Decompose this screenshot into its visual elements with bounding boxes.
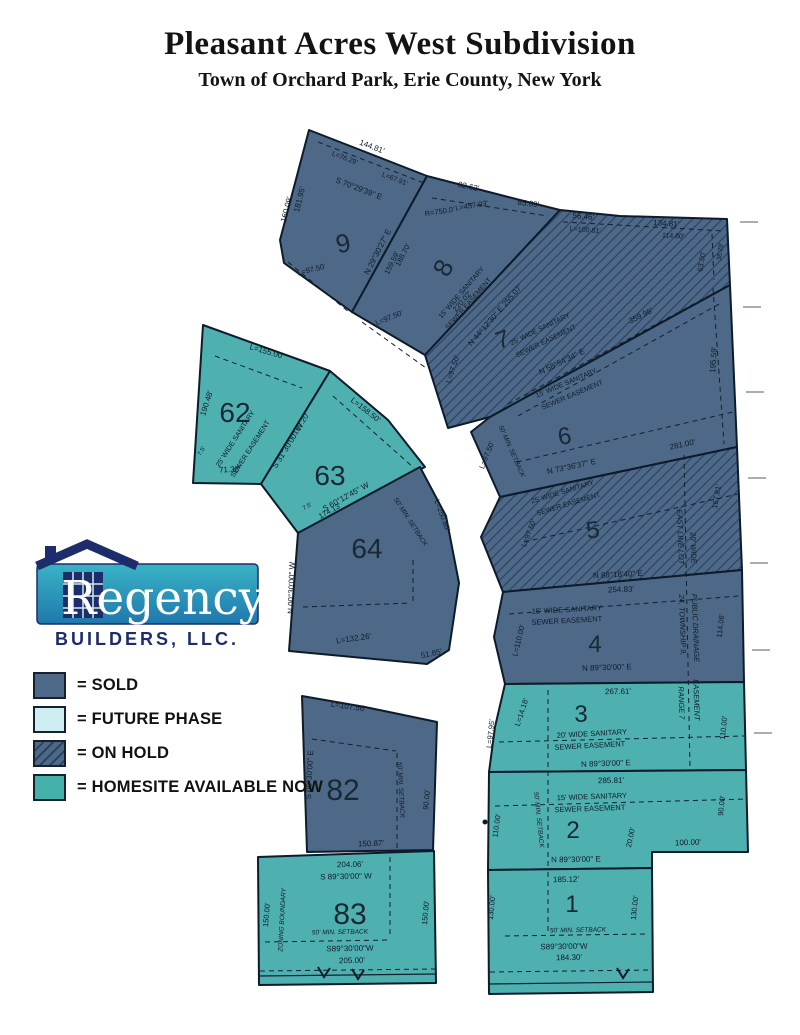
- map-dim-label: 285.81': [598, 776, 625, 785]
- legend-item-future: = FUTURE PHASE: [33, 706, 323, 733]
- map-dim-label: 205.00': [339, 956, 366, 965]
- map-dim-label: 71.38': [219, 464, 241, 474]
- lot-number-2: 2: [566, 817, 579, 844]
- legend-label: = SOLD: [77, 676, 138, 695]
- logo-tagline: BUILDERS, LLC.: [55, 629, 239, 649]
- boundary-ticks: [740, 222, 772, 733]
- subdivision-plat-map: 144.81'L=76.29'L=67.91'S 70°29'39" E160.…: [0, 0, 800, 1035]
- map-dim-label: 254.83': [608, 585, 635, 595]
- map-dim-label: N 89°30'00" E: [581, 758, 631, 769]
- logo-wordmark: Regency: [61, 571, 260, 626]
- map-dim-label: 20' WIDE: [688, 531, 698, 565]
- flyer-page: Pleasant Acres West Subdivision Town of …: [0, 0, 800, 1035]
- legend-swatch-sold: [33, 672, 66, 699]
- lot-number-63: 63: [314, 460, 345, 491]
- map-dim-label: 150.87': [358, 839, 385, 849]
- map-dim-label: S 89°30'00" W: [320, 872, 372, 882]
- legend-label: = FUTURE PHASE: [77, 710, 222, 729]
- map-dim-label: S89°30'00"W: [540, 942, 588, 952]
- lot-number-82: 82: [326, 774, 359, 807]
- lot-number-3: 3: [574, 701, 587, 728]
- legend: = SOLD= FUTURE PHASE= ON HOLD= HOMESITE …: [33, 672, 323, 808]
- legend-label: = HOMESITE AVAILABLE NOW: [77, 778, 323, 797]
- legend-item-sold: = SOLD: [33, 672, 323, 699]
- map-dim-label: 267.61': [605, 687, 632, 696]
- map-dim-label: N 89°30'00" E: [582, 662, 632, 673]
- map-dim-label: 100.00': [675, 838, 702, 848]
- map-dim-label: RANGE 7: [676, 686, 686, 720]
- lot-regions: [193, 130, 748, 994]
- legend-label: = ON HOLD: [77, 744, 169, 763]
- map-dim-label: 134.81': [653, 218, 680, 229]
- map-dim-label: S89°30'00"W: [326, 944, 374, 954]
- lot-number-62: 62: [219, 397, 250, 428]
- map-dim-label: 184.30': [556, 953, 583, 962]
- legend-item-available: = HOMESITE AVAILABLE NOW: [33, 774, 323, 801]
- lot-region-2: [488, 770, 748, 870]
- map-dim-label: 50' MIN. SETBACK: [550, 926, 607, 934]
- legend-swatch-available: [33, 774, 66, 801]
- legend-swatch-future: [33, 706, 66, 733]
- legend-swatch-onhold: [33, 740, 66, 767]
- legend-item-onhold: = ON HOLD: [33, 740, 323, 767]
- lot-number-64: 64: [351, 533, 382, 564]
- lot-number-83: 83: [333, 898, 366, 931]
- regency-builders-logo: Regency BUILDERS, LLC.: [35, 538, 260, 650]
- map-dim-label: N 00°30'00" W: [286, 561, 297, 614]
- lot-number-4: 4: [588, 631, 601, 658]
- lot-number-1: 1: [565, 891, 578, 918]
- map-dim-label: EASEMENT: [691, 679, 701, 722]
- map-dim-label: 185.12': [553, 875, 580, 884]
- map-dim-label: N 89°30'00" E: [551, 855, 601, 865]
- map-dim-label: 195.59': [708, 346, 719, 373]
- map-dim-label: 56.46': [572, 211, 595, 222]
- map-dim-label: 204.06': [337, 860, 364, 869]
